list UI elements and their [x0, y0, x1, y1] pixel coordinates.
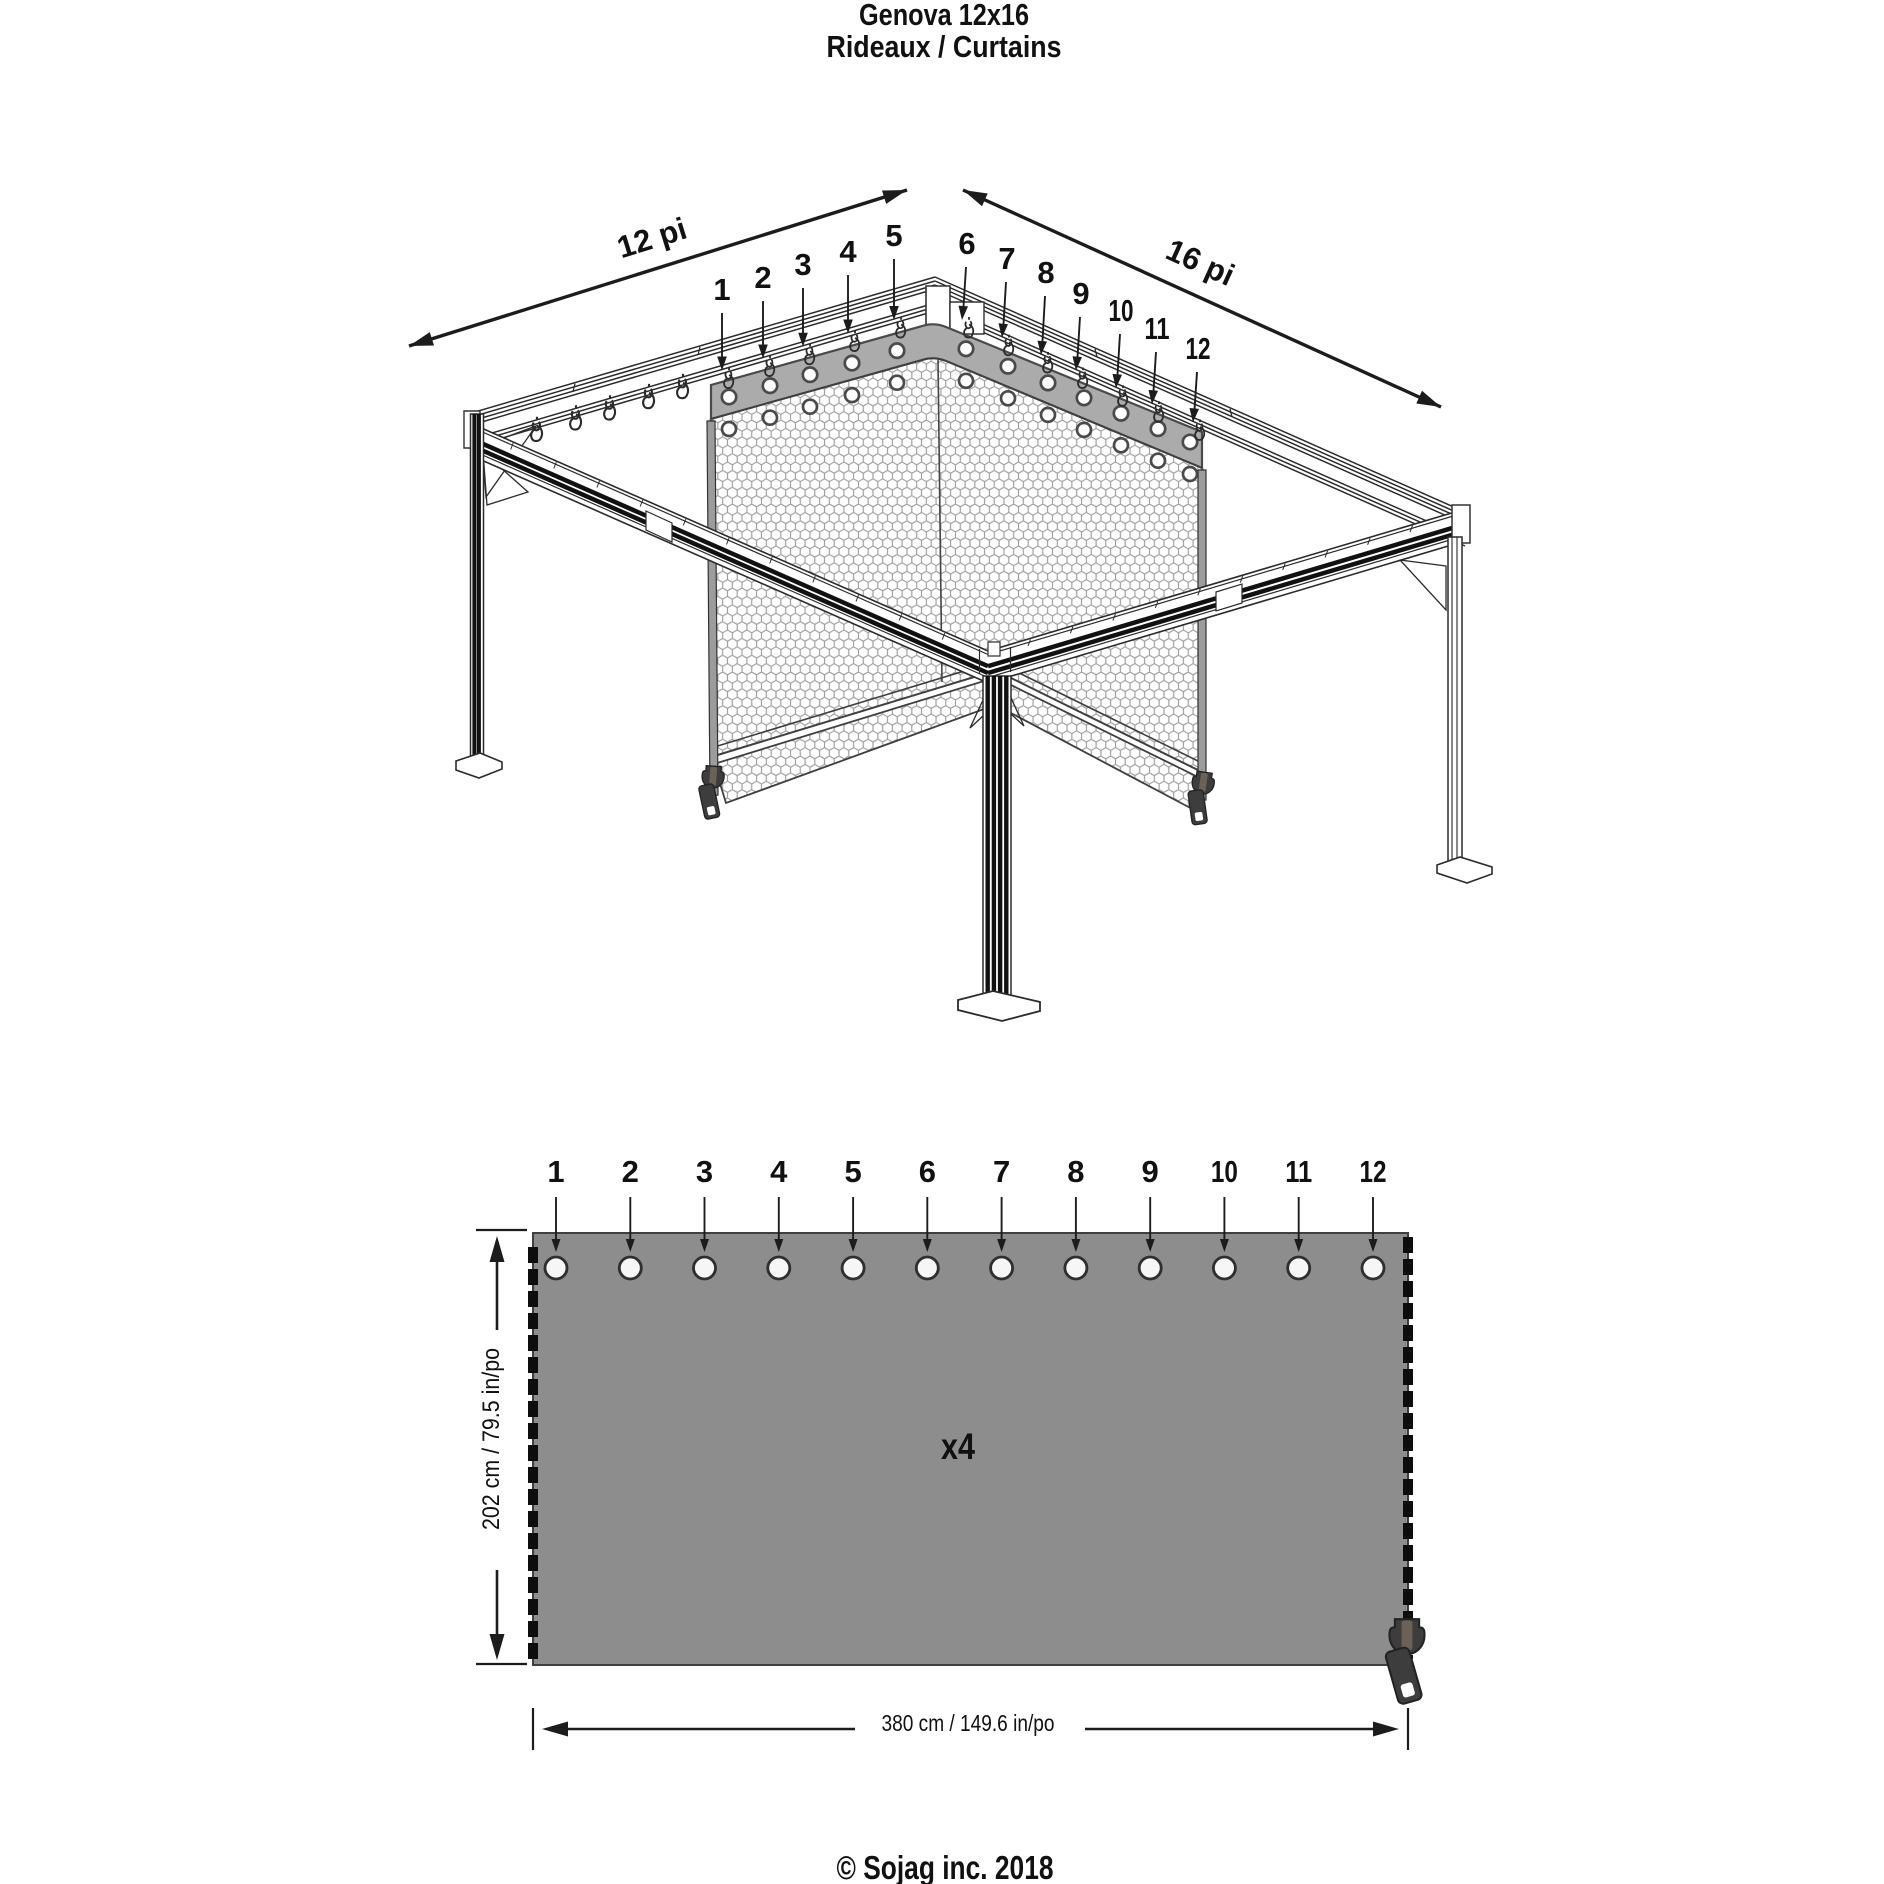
- svg-text:6: 6: [919, 1154, 936, 1189]
- svg-text:12: 12: [1359, 1154, 1386, 1189]
- svg-text:8: 8: [1067, 1154, 1084, 1189]
- svg-text:9: 9: [1072, 276, 1089, 311]
- svg-text:7: 7: [993, 1154, 1010, 1189]
- svg-text:x4: x4: [941, 1426, 975, 1467]
- svg-text:© Sojag inc. 2018: © Sojag inc. 2018: [837, 1849, 1054, 1884]
- svg-text:5: 5: [885, 218, 902, 253]
- svg-text:4: 4: [770, 1154, 788, 1189]
- svg-text:5: 5: [844, 1154, 861, 1189]
- svg-text:11: 11: [1145, 311, 1170, 346]
- svg-text:3: 3: [696, 1154, 713, 1189]
- svg-text:11: 11: [1285, 1154, 1312, 1189]
- svg-text:7: 7: [998, 241, 1015, 276]
- svg-text:12: 12: [1186, 331, 1211, 366]
- svg-text:380 cm / 149.6 in/po: 380 cm / 149.6 in/po: [882, 1710, 1055, 1736]
- svg-text:1: 1: [713, 272, 730, 307]
- svg-text:6: 6: [958, 226, 975, 261]
- svg-text:Genova 12x16: Genova 12x16: [859, 0, 1029, 32]
- svg-text:2: 2: [622, 1154, 639, 1189]
- svg-text:4: 4: [839, 234, 857, 269]
- svg-text:9: 9: [1142, 1154, 1159, 1189]
- svg-text:3: 3: [794, 247, 811, 282]
- svg-text:10: 10: [1109, 293, 1134, 328]
- svg-text:10: 10: [1211, 1154, 1238, 1189]
- svg-text:1: 1: [547, 1154, 564, 1189]
- svg-text:2: 2: [754, 260, 771, 295]
- svg-text:8: 8: [1037, 255, 1054, 290]
- svg-text:Rideaux / Curtains: Rideaux / Curtains: [827, 29, 1062, 64]
- svg-text:202 cm / 79.5 in/po: 202 cm / 79.5 in/po: [478, 1348, 505, 1530]
